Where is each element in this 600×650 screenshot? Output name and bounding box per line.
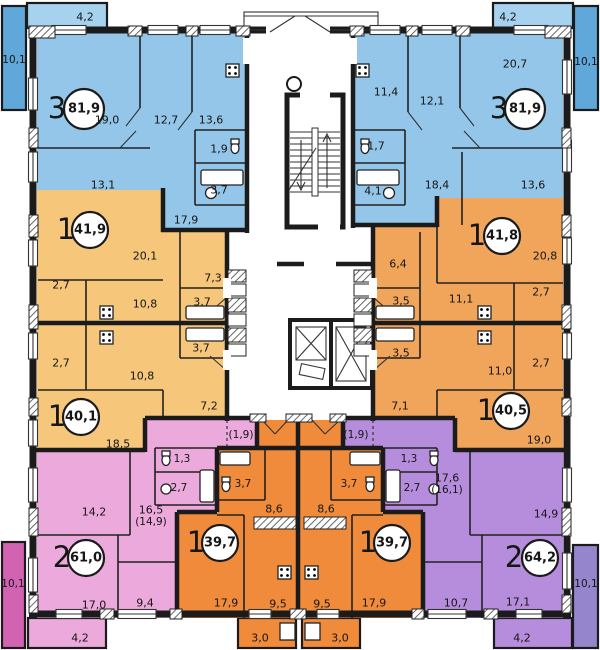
room-area-label: 8,6 xyxy=(317,503,335,516)
room-area-label: 17,6 xyxy=(435,472,460,485)
apartment-type-label: 2 xyxy=(505,540,523,574)
balcony-top-left xyxy=(27,3,107,28)
apartment-label-group: 1 40,5 xyxy=(477,393,529,429)
room-area-label: 18,5 xyxy=(106,438,131,451)
washbasin-icon xyxy=(161,484,171,494)
apartment-area-label: 81,9 xyxy=(509,102,541,117)
room-area-label: 3,7 xyxy=(341,478,358,490)
balcony-bottom-left xyxy=(28,618,106,648)
room-area-label: 3,7 xyxy=(235,478,252,490)
room-area-label: 19,0 xyxy=(527,434,552,447)
room-area-label: 7,1 xyxy=(391,400,409,413)
apartment-area-label: 41,8 xyxy=(486,229,518,244)
balcony-side-bottom-right xyxy=(573,545,598,648)
room-area-label: 17,9 xyxy=(174,214,199,227)
room-area-label: 3,7 xyxy=(192,342,210,355)
room-area-label: 3,7 xyxy=(193,296,211,309)
toilet-icon xyxy=(231,139,239,154)
staircase xyxy=(289,128,340,196)
room-area-label: 20,1 xyxy=(133,250,158,263)
room-area-label: 1,9 xyxy=(210,143,228,156)
room-area-label: (14,9) xyxy=(135,516,167,528)
apartment-label-group: 1 41,8 xyxy=(468,218,520,254)
room-area-label: 9,5 xyxy=(313,598,331,611)
apartment-label-group: 2 61,0 xyxy=(53,540,104,576)
stove-icon xyxy=(100,306,113,319)
balcony-cabinet xyxy=(280,623,295,640)
stove-icon xyxy=(226,64,239,77)
room-area-label: (1,9) xyxy=(229,429,254,441)
door-opening xyxy=(349,38,357,64)
room-area-label: 9,5 xyxy=(269,598,287,611)
apartment-label-group: 1 39,7 xyxy=(187,525,238,561)
bathtub-icon xyxy=(200,470,214,502)
washbasin-icon xyxy=(384,188,395,199)
toilet-icon xyxy=(162,451,170,466)
room-area-label: 17,1 xyxy=(506,596,531,609)
room-area-label: (1,9) xyxy=(344,429,369,441)
room-area-label: 1,3 xyxy=(401,453,418,465)
apartment-area-label: 40,5 xyxy=(495,404,527,419)
room-area-label: 11,0 xyxy=(488,365,513,378)
bathtub-icon xyxy=(376,306,414,319)
apartment-area-label: 61,0 xyxy=(70,551,102,566)
room-area-label: 14,2 xyxy=(82,506,107,519)
room-area-label: 17,9 xyxy=(362,597,387,610)
room-area-label: 2,7 xyxy=(532,286,550,299)
room-area-label: (16,1) xyxy=(431,484,463,496)
toilet-icon xyxy=(366,477,374,492)
room-area-label: 11,1 xyxy=(449,293,474,306)
room-area-label: 20,7 xyxy=(503,58,528,71)
balcony-bottom-right xyxy=(494,618,572,648)
balcony-area-label: 10,1 xyxy=(574,56,597,68)
room-area-label: 17,0 xyxy=(82,599,107,612)
apartment-label-group: 1 39,7 xyxy=(359,525,410,561)
bathtub-icon xyxy=(376,328,414,341)
bathtub-icon xyxy=(186,328,224,341)
balcony-cabinet xyxy=(305,623,320,640)
room-area-label: 8,6 xyxy=(265,503,283,516)
room-area-label: 9,4 xyxy=(136,597,154,610)
room-area-label: 13,6 xyxy=(199,114,224,127)
balcony-area-label: 4,2 xyxy=(71,632,89,645)
room-area-label: 2,7 xyxy=(404,482,421,494)
door-opening xyxy=(243,38,251,64)
balcony-area-label: 3,0 xyxy=(331,632,349,645)
balcony-side-bottom-left xyxy=(2,542,25,648)
balcony-area-label: 3,0 xyxy=(251,632,269,645)
apartment-area-label: 40,1 xyxy=(65,410,97,425)
stove-icon xyxy=(478,331,491,344)
room-area-label: 2,7 xyxy=(52,357,70,370)
balcony-area-label: 4,2 xyxy=(76,11,94,24)
room-area-label: 10,8 xyxy=(133,298,158,311)
room-area-label: 2,7 xyxy=(171,482,188,494)
apartment-label-group: 1 40,1 xyxy=(48,399,99,435)
apartment-label-group: 3 81,9 xyxy=(490,89,545,129)
floor-plan: 3 81,9 19,0 12,7 13,6 1,9 3,7 13,1 17,9 … xyxy=(0,0,600,650)
stove-icon xyxy=(100,331,113,344)
stove-icon xyxy=(356,64,369,77)
room-area-label: 11,4 xyxy=(374,86,399,99)
stove-icon xyxy=(278,566,291,579)
room-area-label: 3,5 xyxy=(392,295,410,308)
bathtub-icon xyxy=(386,470,400,502)
bathtub-icon xyxy=(350,452,380,465)
kitchen-counter xyxy=(254,517,296,529)
apartment-area-label: 39,7 xyxy=(376,536,408,551)
door-opening xyxy=(223,350,231,370)
room-area-label: 1,7 xyxy=(367,140,385,153)
floor-plan-canvas: 3 81,9 19,0 12,7 13,6 1,9 3,7 13,1 17,9 … xyxy=(0,0,600,650)
room-area-label: 3,5 xyxy=(392,347,410,360)
apartment-area-label: 41,9 xyxy=(74,223,106,238)
room-area-label: 10,8 xyxy=(130,370,155,383)
room-area-label: 20,8 xyxy=(533,250,558,263)
balcony-area-label: 10,1 xyxy=(1,578,24,590)
room-area-label: 2,7 xyxy=(52,279,70,292)
room-area-label: 4,1 xyxy=(364,185,382,198)
balcony-area-label: 10,1 xyxy=(574,578,597,590)
room-area-label: 1,3 xyxy=(174,453,191,465)
door-opening xyxy=(223,278,231,298)
bathtub-icon xyxy=(357,170,399,185)
apartment-area-label: 64,2 xyxy=(524,551,556,566)
room-area-label: 10,7 xyxy=(444,597,469,610)
room-area-label: 7,2 xyxy=(200,400,218,413)
door-opening xyxy=(300,91,330,99)
room-area-label: 3,7 xyxy=(210,184,228,197)
room-area-label: 16,5 xyxy=(139,504,164,517)
balcony-area-label: 10,1 xyxy=(2,54,25,66)
room-area-label: 12,1 xyxy=(420,95,445,108)
garbage-chute-icon xyxy=(287,77,301,91)
bathtub-icon xyxy=(220,452,250,465)
kitchen-counter xyxy=(304,517,346,529)
apartment-area-label: 39,7 xyxy=(204,536,236,551)
stove-icon xyxy=(305,566,318,579)
toilet-icon xyxy=(222,477,230,492)
apartment-label-group: 2 64,2 xyxy=(505,540,558,576)
apartment-label-group: 1 41,9 xyxy=(57,212,108,248)
room-area-label: 13,6 xyxy=(521,179,546,192)
toilet-icon xyxy=(430,451,438,466)
door-opening xyxy=(369,278,377,298)
stove-icon xyxy=(478,306,491,319)
room-area-label: 18,4 xyxy=(425,179,450,192)
room-area-label: 19,0 xyxy=(95,114,120,127)
room-area-label: 14,9 xyxy=(534,508,559,521)
room-area-label: 13,1 xyxy=(91,179,116,192)
room-area-label: 17,9 xyxy=(214,597,239,610)
balcony-area-label: 4,2 xyxy=(499,11,517,24)
balcony-area-label: 4,2 xyxy=(513,632,531,645)
door-opening xyxy=(369,350,377,370)
room-area-label: 2,7 xyxy=(532,357,550,370)
room-area-label: 6,4 xyxy=(389,258,407,271)
door-opening xyxy=(318,223,340,231)
room-area-label: 12,7 xyxy=(154,114,179,127)
room-area-label: 7,3 xyxy=(204,272,222,285)
